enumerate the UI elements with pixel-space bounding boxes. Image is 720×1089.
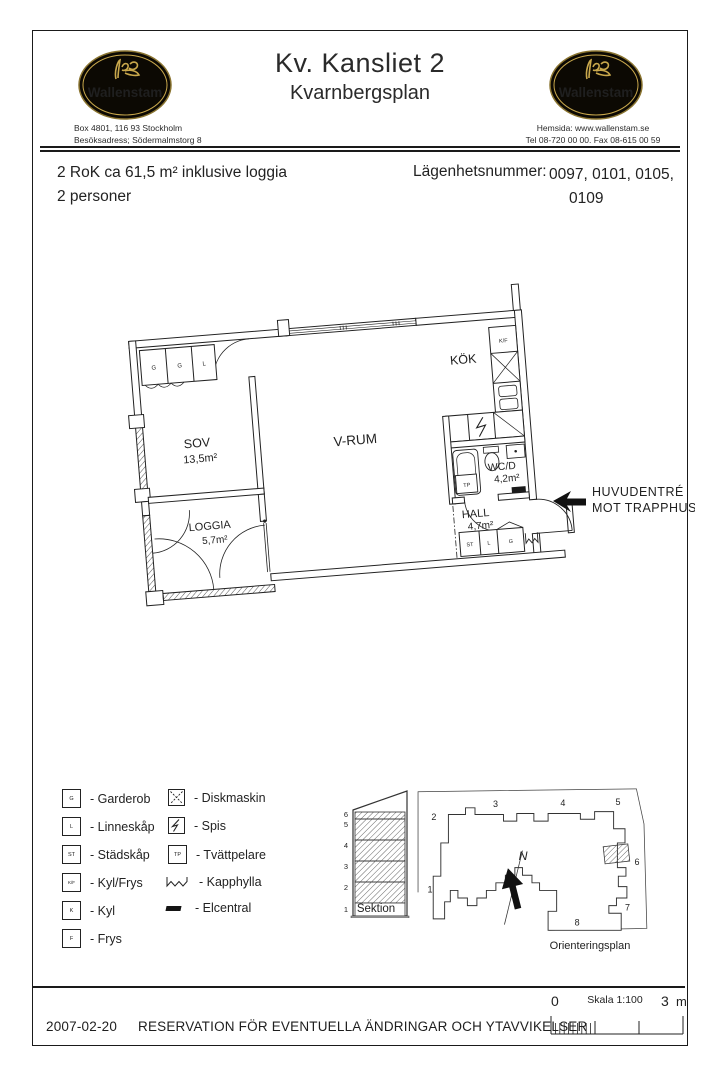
scale-zero: 0: [551, 993, 559, 1009]
entrance-label-line2: MOT TRAPPHUS: [592, 501, 695, 515]
room-area-hall: 4,7m²: [467, 520, 494, 533]
document-page: Wallenstam Wallenstam Kv. Kansliet 2 Kva…: [0, 0, 720, 1089]
apartment-number-label: Lägenhetsnummer:: [413, 163, 547, 181]
tvattpelare-symbol: TP: [168, 845, 187, 864]
wall-sov-loggia: [148, 488, 264, 503]
toilet-tank: [483, 446, 498, 453]
window-top: [286, 318, 416, 335]
apartment-persons: 2 personer: [57, 185, 287, 209]
room-label-wcd: WC/D: [487, 460, 516, 474]
room-area-loggia: 5,7m²: [202, 534, 229, 547]
wall-wcd-bottom-left: [452, 497, 464, 504]
legend-label: - Kyl: [90, 904, 115, 918]
legend-label: - Garderob: [90, 792, 150, 806]
legend-row-linneskap: L - Linneskåp: [62, 817, 155, 836]
window-loggia-front: [163, 585, 275, 601]
legend-label: - Städskåp: [90, 848, 150, 862]
building-number: 4: [560, 798, 565, 808]
legend-label: - Linneskåp: [90, 820, 155, 834]
building-number: 5: [616, 797, 621, 807]
legend-row-kapphylla: - Kapphylla: [164, 873, 262, 890]
page-subtitle: Kvarnbergsplan: [0, 82, 720, 105]
floor-label: 5: [344, 820, 348, 829]
entrance-label-line1: HUVUDENTRÉ: [592, 484, 684, 499]
wall-bottom: [271, 550, 566, 581]
legend-label: - Diskmaskin: [194, 791, 266, 805]
tp-label: TP: [463, 482, 471, 489]
legend-label: - Kapphylla: [199, 875, 262, 889]
legend-label: - Kyl/Frys: [90, 876, 143, 890]
legend-label: - Elcentral: [195, 901, 251, 915]
diskmaskin-icon: [168, 789, 185, 806]
legend-label: - Frys: [90, 932, 122, 946]
apartment-numbers-line2: 0109: [569, 187, 689, 211]
building-number: 1: [428, 884, 433, 894]
kylfrys-symbol: K/F: [62, 873, 81, 892]
building-number: 3: [493, 799, 498, 809]
legend-row-frys: F - Frys: [62, 929, 122, 948]
north-label: N: [519, 849, 528, 863]
building-number: 6: [634, 857, 639, 867]
floor-label: 3: [344, 862, 348, 871]
scale-unit: m: [676, 994, 687, 1009]
building-footprint: [433, 808, 627, 930]
contact-web-line: Hemsida: www.wallenstam.se: [500, 122, 686, 134]
legend-row-kyl: K - Kyl: [62, 901, 115, 920]
room-area-sov: 13,5m²: [183, 452, 218, 467]
wall-loggia-stub: [258, 494, 266, 521]
orientation-caption: Orienteringsplan: [495, 940, 685, 952]
spis-icon: [168, 817, 185, 834]
legend-row-kylfrys: K/F - Kyl/Frys: [62, 873, 143, 892]
window-sov: [135, 423, 148, 493]
contact-phone-line: Tel 08-720 00 00. Fax 08-615 00 59: [500, 134, 686, 146]
wall-sov-vrum: [249, 376, 264, 494]
hall-cabinet-label: G: [509, 539, 514, 545]
scale-max: 3: [661, 993, 669, 1009]
floor-label: 2: [344, 883, 348, 892]
building-number: 7: [625, 902, 630, 912]
legend-row-spis: - Spis: [168, 817, 226, 834]
kapphylla-icon: [164, 873, 190, 890]
room-label-vrum: V-RUM: [333, 431, 378, 449]
room-area-wcd: 4,2m²: [494, 472, 521, 485]
building-number: 8: [575, 918, 580, 928]
window-pillar: [129, 414, 145, 428]
apartment-numbers-line1: 0097, 0101, 0105,: [549, 163, 689, 187]
scale-label: Skala 1:100: [587, 994, 643, 1006]
frys-symbol: F: [62, 929, 81, 948]
floor-label: 4: [344, 841, 348, 850]
window-frame-pillar: [277, 320, 289, 337]
hall-cabinet-label: L: [487, 541, 491, 547]
apartment-info: 2 RoK ca 61,5 m² inklusive loggia 2 pers…: [57, 161, 287, 209]
floor-label: 6: [344, 810, 348, 819]
orientation-plan: N 1 2 3 4 5 6 7 8: [412, 786, 688, 936]
page-title: Kv. Kansliet 2: [0, 48, 720, 79]
legend-label: - Tvättpelare: [196, 848, 266, 862]
loggia-casement-arc: [149, 510, 192, 553]
header-divider-bottom: [40, 150, 680, 152]
wall-wcd-bottom-right: [498, 492, 529, 500]
legend-row-tvattpelare: TP - Tvättpelare: [168, 845, 266, 864]
building-number: 2: [431, 812, 436, 822]
room-label-sov: SOV: [183, 435, 211, 451]
window-loggia-side: [143, 515, 156, 593]
room-label-kok: KÖK: [449, 352, 477, 368]
apartment-location-marker: [603, 844, 630, 864]
footer-divider: [33, 986, 685, 988]
elcentral-icon: [165, 906, 181, 911]
garderob-symbol: G: [62, 789, 81, 808]
contact-box-line: Box 4801, 116 93 Stockholm: [74, 122, 274, 134]
hall-open-boundary: [453, 506, 457, 559]
loggia-corner-pillar: [146, 591, 164, 606]
hall-cabinet-label: ST: [466, 542, 474, 549]
legend-row-diskmaskin: - Diskmaskin: [168, 789, 266, 806]
legend-label: - Spis: [194, 819, 226, 833]
legend-row-garderob: G - Garderob: [62, 789, 150, 808]
contact-address-block: Box 4801, 116 93 Stockholm Besöksadress;…: [74, 122, 274, 147]
apartment-numbers: 0097, 0101, 0105, 0109: [549, 163, 689, 211]
loggia-door-arc: [216, 525, 269, 578]
kf-label: K/F: [499, 338, 509, 345]
contact-web-block: Hemsida: www.wallenstam.se Tel 08-720 00…: [500, 122, 686, 147]
wall-stub-top: [511, 284, 520, 310]
stadskap-symbol: ST: [62, 845, 81, 864]
wall-top-right: [416, 310, 521, 325]
room-label-loggia: LOGGIA: [188, 519, 232, 534]
legend-row-stadskap: ST - Städskåp: [62, 845, 150, 864]
wardrobe-label: G: [177, 363, 182, 369]
footer-date: 2007-02-20: [46, 1019, 117, 1034]
footer-disclaimer: RESERVATION FÖR EVENTUELLA ÄNDRINGAR OCH…: [138, 1019, 587, 1034]
kyl-symbol: K: [62, 901, 81, 920]
room-label-hall: HALL: [461, 507, 489, 521]
section-caption: Sektion: [337, 903, 415, 915]
wardrobe-label: G: [151, 365, 156, 371]
sov-door-arc: [211, 339, 252, 380]
contact-visit-line: Besöksadress; Södermalmstorg 8: [74, 134, 274, 146]
section-diagram: 6 5 4 3 2 1: [337, 786, 415, 918]
linneskap-symbol: L: [62, 817, 81, 836]
scale-bar: 0 Skala 1:100 3 m: [543, 990, 693, 1042]
apartment-size: 2 RoK ca 61,5 m² inklusive loggia: [57, 161, 287, 185]
legend-row-elcentral: - Elcentral: [166, 901, 251, 915]
header-divider-top: [40, 146, 680, 148]
floorplan-drawing: K/F TP G G L ST L G SOV 13,5m² V-RUM KÖK…: [50, 237, 695, 632]
elcentral-icon: [512, 486, 526, 493]
